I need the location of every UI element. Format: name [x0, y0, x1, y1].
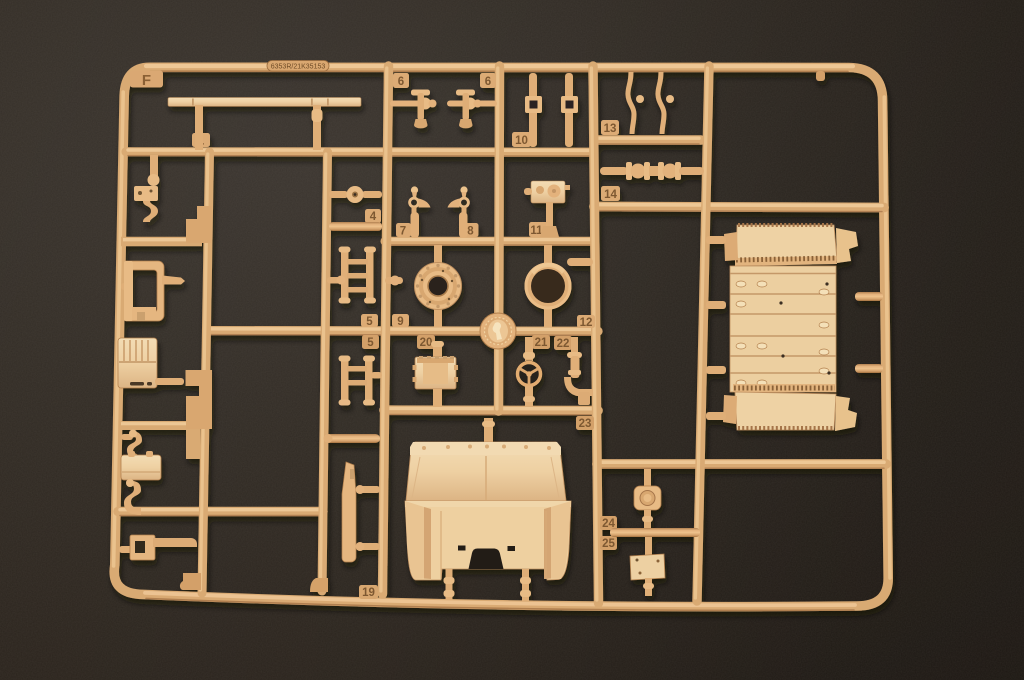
- svg-text:14: 14: [604, 189, 617, 201]
- svg-text:21: 21: [535, 337, 548, 349]
- svg-text:4: 4: [370, 211, 377, 223]
- svg-text:23: 23: [579, 418, 592, 430]
- svg-text:25: 25: [602, 538, 615, 550]
- svg-text:10: 10: [515, 135, 528, 147]
- svg-text:6: 6: [398, 76, 404, 88]
- svg-text:5: 5: [366, 316, 373, 328]
- svg-text:F: F: [142, 72, 151, 89]
- svg-text:6: 6: [485, 76, 491, 88]
- svg-text:5: 5: [367, 337, 374, 349]
- svg-text:20: 20: [420, 337, 433, 349]
- svg-text:19: 19: [362, 587, 375, 599]
- svg-text:12: 12: [580, 317, 593, 329]
- svg-text:22: 22: [557, 338, 570, 350]
- svg-text:13: 13: [604, 123, 617, 135]
- svg-text:7: 7: [400, 226, 406, 238]
- svg-text:9: 9: [397, 316, 403, 328]
- svg-text:8: 8: [467, 226, 474, 238]
- svg-text:6353R/21K35153: 6353R/21K35153: [271, 64, 326, 71]
